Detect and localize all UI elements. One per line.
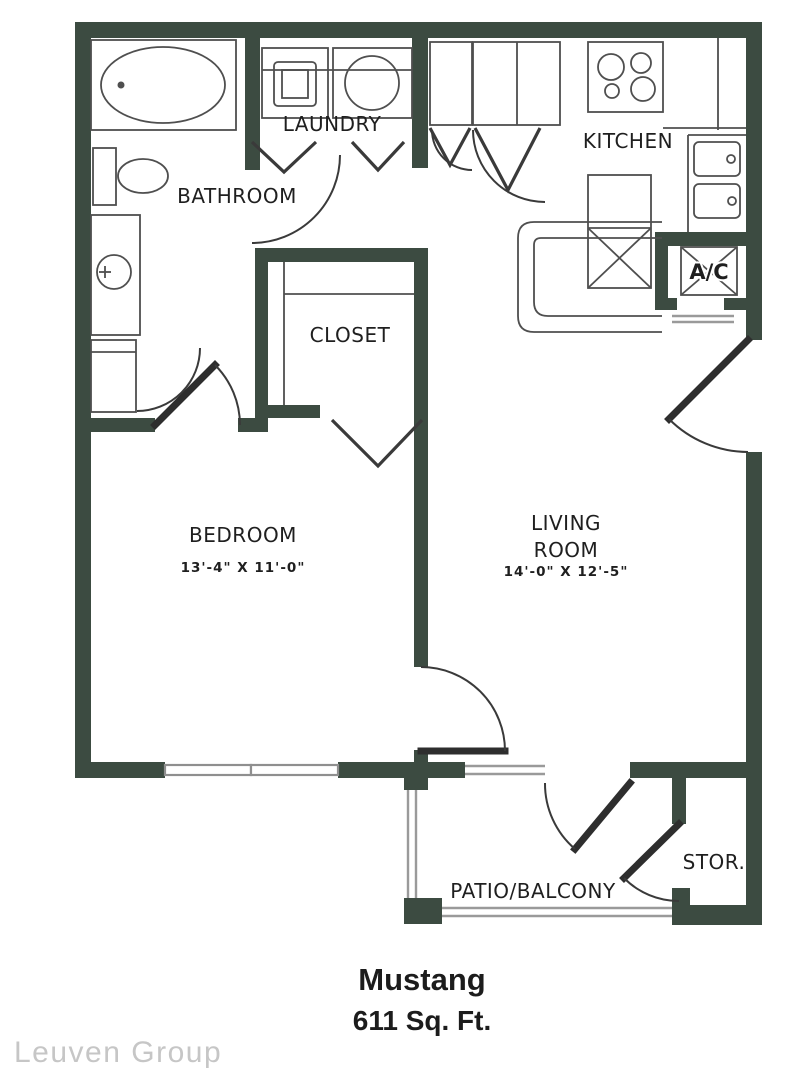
patio-door: [545, 783, 630, 849]
plan-area: 611 Sq. Ft.: [353, 1005, 492, 1036]
linen-door-arc: [137, 348, 200, 411]
windows-and-railings: [165, 316, 734, 916]
dryer-icon: [262, 48, 412, 118]
floor-plan-drawing: LAUNDRY KITCHEN BATHROOM CLOSET BEDROOM …: [0, 0, 804, 1080]
bedroom-hall-door: [155, 365, 240, 425]
bedroom-door: [421, 667, 505, 751]
patio-door-track: [465, 766, 545, 774]
ac-closet-louver: [672, 316, 734, 322]
room-labels: LAUNDRY KITCHEN BATHROOM CLOSET BEDROOM …: [177, 112, 745, 903]
bedroom-label: BEDROOM: [189, 523, 297, 547]
kitchen-counter: [663, 38, 746, 232]
pantry-cabinet-icon: [430, 42, 472, 125]
toilet-icon: [93, 148, 168, 205]
stove-icon: [588, 42, 663, 112]
watermark: Leuven Group: [14, 1036, 222, 1069]
entry-door: [669, 340, 748, 452]
vanity-sink-icon: [91, 215, 140, 335]
plan-title: Mustang: [358, 962, 485, 997]
living-room-label-line2: ROOM: [534, 538, 599, 562]
kitchen-label: KITCHEN: [583, 129, 673, 153]
closet-bifold-door: [332, 420, 422, 466]
bedroom-window: [251, 765, 338, 775]
walls: [75, 22, 762, 925]
bathroom-label: BATHROOM: [177, 184, 297, 208]
floor-plan: LAUNDRY KITCHEN BATHROOM CLOSET BEDROOM …: [0, 0, 804, 1080]
bedroom-dimensions: 13'-4" X 11'-0": [181, 560, 306, 576]
washer-icon: [262, 48, 328, 118]
bathtub-icon: [91, 40, 236, 130]
living-room-label-line1: LIVING: [531, 511, 601, 535]
closet-label: CLOSET: [310, 323, 391, 347]
laundry-label: LAUNDRY: [283, 112, 382, 136]
linen-cabinet-icon: [91, 340, 136, 412]
storage-label: STOR.: [683, 850, 746, 874]
living-room-dimensions: 14'-0" X 12'-5": [504, 564, 629, 580]
ac-label: A/C: [689, 260, 728, 284]
pantry-doors: [430, 128, 545, 202]
plan-caption: Mustang 611 Sq. Ft.: [353, 962, 492, 1036]
kitchen-sink-icon: [694, 142, 740, 218]
storage-door: [624, 824, 679, 901]
refrigerator-icon: [473, 42, 560, 125]
laundry-bifold-doors: [252, 142, 404, 172]
dishwasher-icon: [588, 175, 651, 288]
patio-label: PATIO/BALCONY: [450, 879, 616, 903]
bedroom-window: [165, 765, 251, 775]
